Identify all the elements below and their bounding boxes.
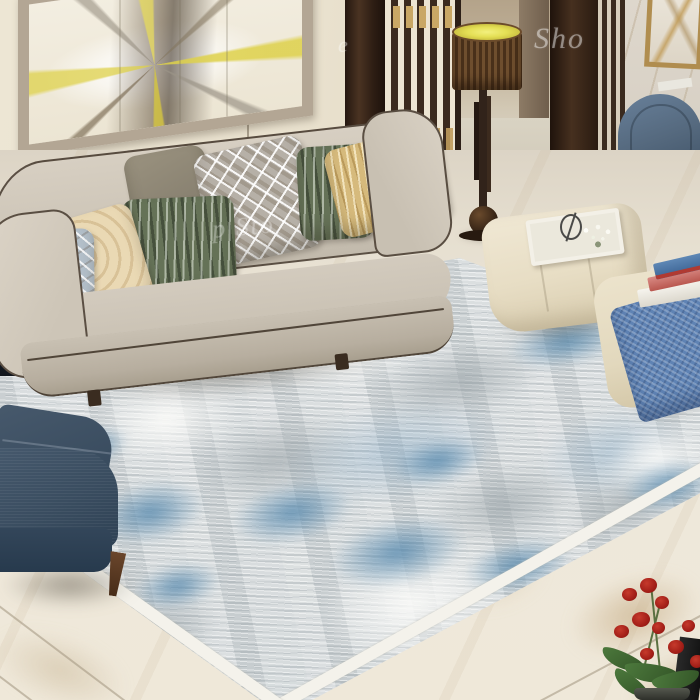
orchid-flower [690,655,700,668]
living-room-photo: Sho p Sto e [0,0,700,700]
white-flowers [578,222,618,250]
watermark-fragment: p Sto [211,209,276,244]
gold-framed-art [644,0,700,69]
navy-armchair-base [0,528,112,572]
floor-lamp-stem [479,90,487,212]
art-panel-seam [226,0,228,117]
art-panel-seam [179,0,181,123]
floor-lamp-glow [452,22,522,42]
chair-seam [630,104,692,156]
art-panel-seam [119,0,121,132]
sofa-arm-right [359,105,455,258]
gold-slat-accent [387,6,455,28]
watermark-fragment: Sho [534,22,585,56]
sofa-leg [87,389,102,406]
watermark-fragment: e [338,32,350,58]
sofa-leg [334,353,349,370]
taupe-sofa [0,102,482,435]
plant-pot [634,688,690,700]
floor-lamp-stem [487,96,491,192]
